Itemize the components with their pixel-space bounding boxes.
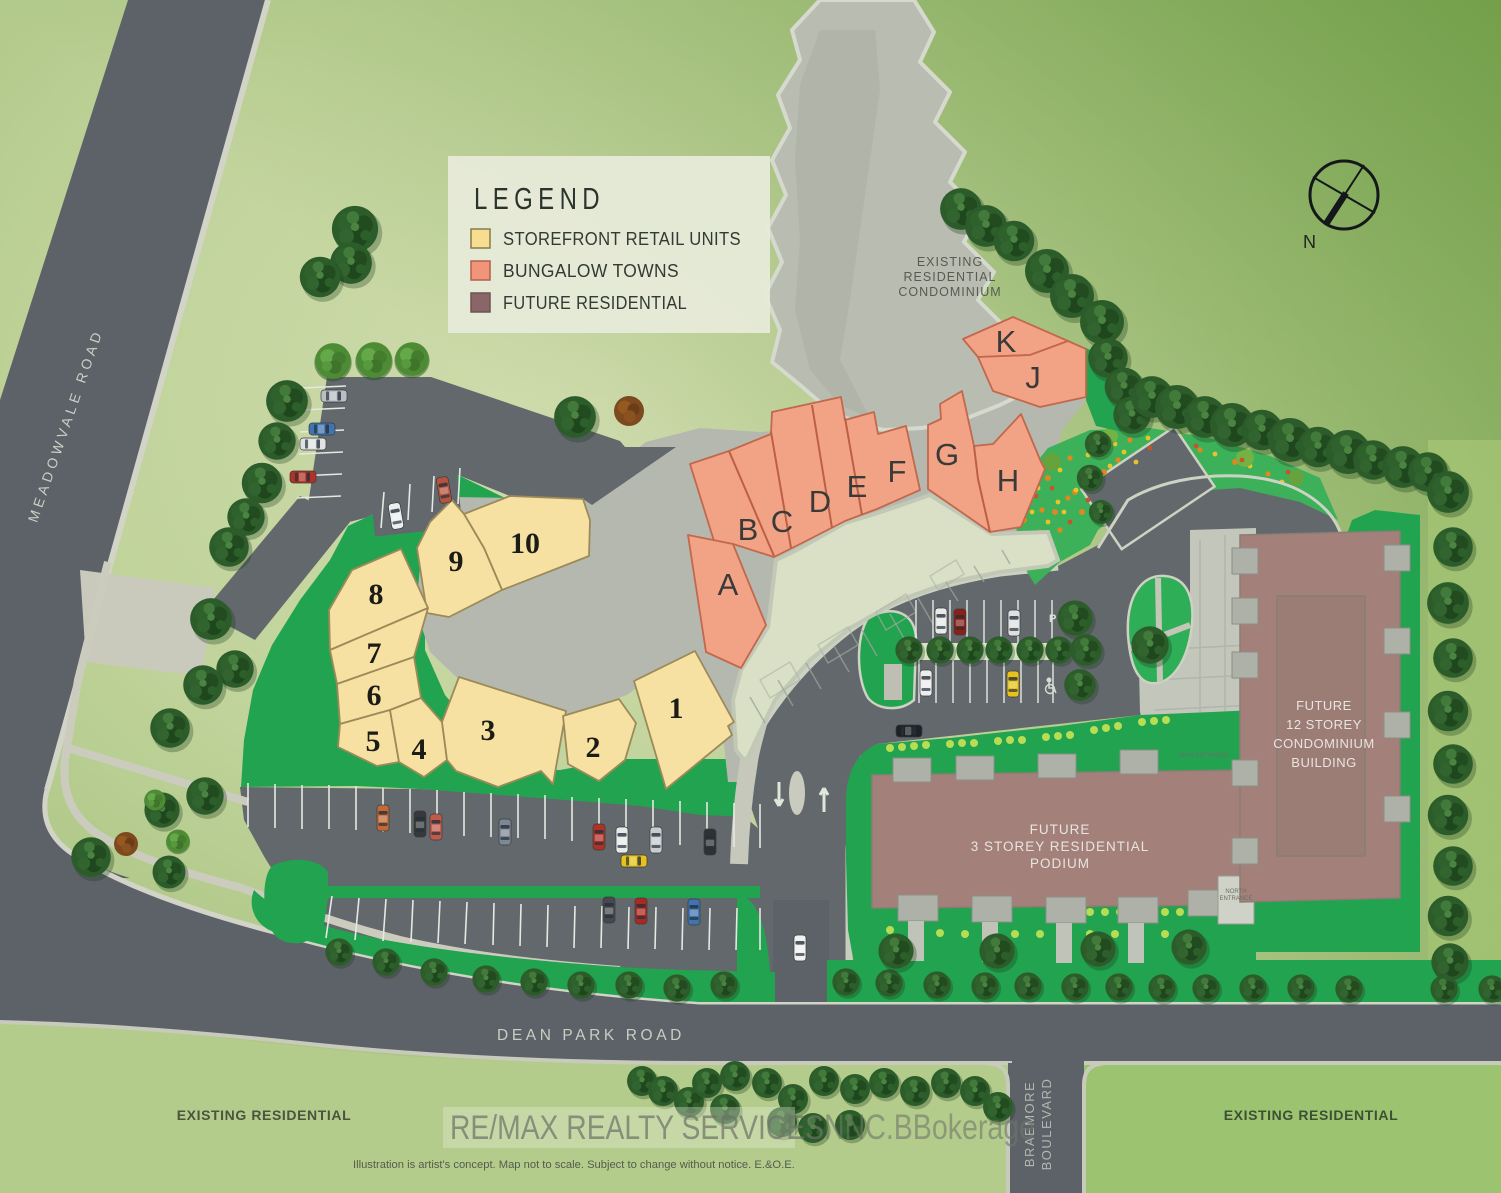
svg-text:3 STOREY RESIDENTIAL: 3 STOREY RESIDENTIAL: [971, 839, 1150, 854]
svg-text:EXISTING RESIDENTIAL: EXISTING RESIDENTIAL: [1224, 1107, 1399, 1123]
svg-text:F: F: [888, 454, 907, 489]
svg-text:4: 4: [412, 733, 427, 766]
svg-text:P: P: [1049, 613, 1056, 625]
svg-text:7: 7: [367, 637, 382, 670]
svg-text:STOREFRONT RETAIL UNITS: STOREFRONT RETAIL UNITS: [503, 229, 741, 249]
svg-text:FUTURE: FUTURE: [1030, 822, 1091, 837]
svg-text:12 STOREY: 12 STOREY: [1286, 717, 1362, 732]
svg-text:H: H: [997, 463, 1019, 498]
svg-text:5: 5: [366, 725, 381, 758]
svg-text:RESIDENTIAL: RESIDENTIAL: [904, 270, 997, 284]
svg-text:EXISTING: EXISTING: [917, 255, 983, 269]
svg-text:6: 6: [367, 679, 382, 712]
svg-text:FUTURE: FUTURE: [1296, 698, 1352, 713]
svg-text:8: 8: [369, 578, 384, 611]
svg-text:B: B: [738, 512, 759, 547]
svg-text:ENTRANCE: ENTRANCE: [1219, 896, 1252, 902]
svg-text:LEGEND: LEGEND: [474, 181, 605, 216]
svg-text:3: 3: [481, 714, 496, 747]
svg-text:9: 9: [449, 545, 464, 578]
svg-text:FUTURE RESIDENTIAL: FUTURE RESIDENTIAL: [503, 293, 687, 313]
svg-text:NNC.BBokerage: NNC.BBokerage: [824, 1108, 1035, 1147]
svg-text:MAIN ENTRANCE: MAIN ENTRANCE: [1179, 753, 1229, 759]
svg-text:NORTH: NORTH: [1225, 889, 1246, 895]
svg-text:D: D: [809, 484, 831, 519]
svg-text:BUNGALOW TOWNS: BUNGALOW TOWNS: [503, 261, 679, 281]
svg-text:G: G: [935, 437, 959, 472]
svg-text:K: K: [996, 324, 1017, 359]
svg-text:C: C: [771, 504, 793, 539]
svg-text:J: J: [1025, 360, 1041, 395]
svg-text:EXISTING RESIDENTIAL: EXISTING RESIDENTIAL: [177, 1107, 352, 1123]
svg-text:CONDOMINIUM: CONDOMINIUM: [898, 285, 1001, 299]
svg-text:1: 1: [669, 692, 684, 725]
svg-text:E: E: [847, 469, 868, 504]
svg-text:RE/MAX REALTY SERVICES: RE/MAX REALTY SERVICES: [450, 1109, 824, 1147]
svg-text:DEAN PARK ROAD: DEAN PARK ROAD: [497, 1027, 685, 1044]
svg-text:BOULEVARD: BOULEVARD: [1039, 1078, 1054, 1171]
svg-text:2: 2: [586, 731, 601, 764]
svg-text:PODIUM: PODIUM: [1030, 856, 1090, 871]
svg-text:CONDOMINIUM: CONDOMINIUM: [1273, 736, 1375, 751]
svg-text:BUILDING: BUILDING: [1291, 755, 1356, 770]
svg-text:10: 10: [510, 527, 540, 560]
svg-text:Illustration is artist's conce: Illustration is artist's concept. Map no…: [353, 1159, 795, 1171]
svg-text:N: N: [1303, 232, 1316, 252]
svg-text:A: A: [718, 567, 739, 602]
